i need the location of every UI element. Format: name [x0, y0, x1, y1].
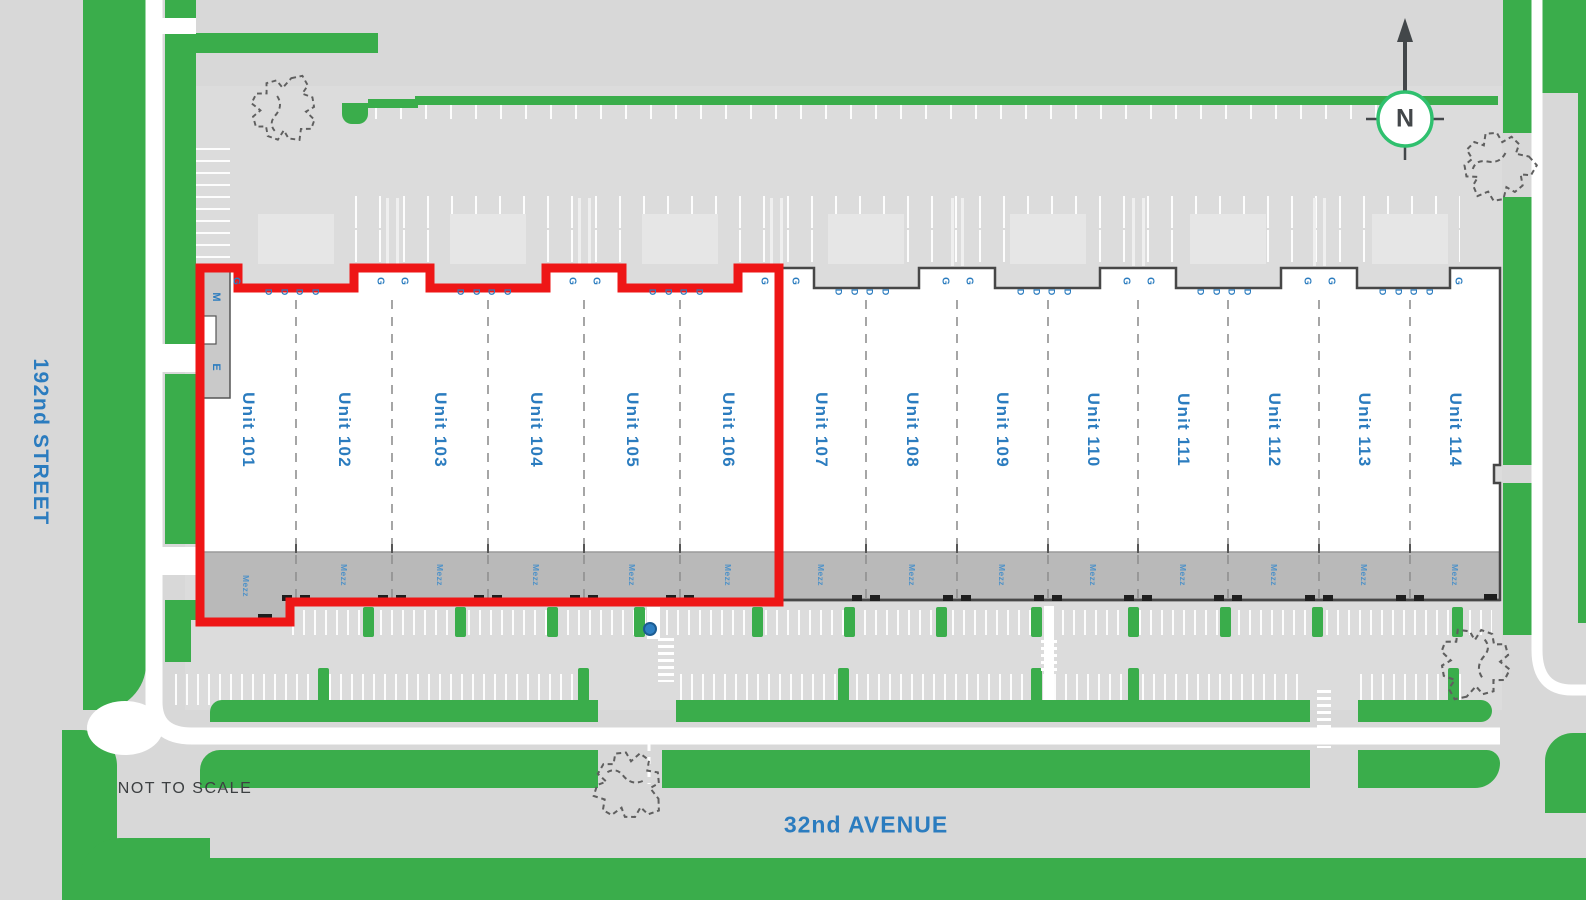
man-door-label: D: [1046, 289, 1056, 296]
man-door-labels: DDDD: [835, 287, 888, 297]
mezzanine-band: [200, 552, 1500, 622]
mech-room-label: M: [210, 292, 222, 301]
garage-door-label: G: [1453, 277, 1464, 285]
unit-label: Unit 104: [526, 392, 546, 468]
man-door-label: D: [455, 289, 465, 296]
man-door-label: D: [486, 289, 496, 296]
mezz-label: Mezz: [1450, 564, 1460, 586]
garage-door-label: G: [759, 277, 770, 285]
mezz-label: Mezz: [627, 564, 637, 586]
unit-label: Unit 106: [718, 392, 738, 468]
mezz-label: Mezz: [435, 564, 445, 586]
garage-door-label: G: [1302, 277, 1313, 285]
scale-note: NOT TO SCALE: [118, 780, 252, 798]
unit-label: Unit 113: [1354, 393, 1374, 468]
unit-label: Unit 105: [622, 392, 642, 468]
man-door-label: D: [1211, 289, 1221, 296]
mezz-label: Mezz: [1269, 564, 1279, 586]
man-door-label: D: [471, 289, 481, 296]
unit-label: Unit 107: [811, 392, 831, 468]
site-plan: Unit 101 Unit 102 Unit 103 Unit 104 Unit…: [0, 0, 1586, 900]
man-door-label: D: [1062, 289, 1072, 296]
man-door-label: D: [880, 289, 890, 296]
unit-label: Unit 111: [1173, 393, 1193, 467]
garage-door-label: G: [940, 277, 951, 285]
mezz-label: Mezz: [1178, 564, 1188, 586]
garage-door-label: G: [790, 277, 801, 285]
mezz-label: Mezz: [339, 564, 349, 586]
man-door-label: D: [1424, 289, 1434, 296]
man-door-label: D: [1195, 289, 1205, 296]
unit-label: Unit 103: [430, 392, 450, 468]
mezz-label: Mezz: [531, 564, 541, 586]
man-door-labels: DDDD: [1379, 287, 1432, 297]
man-door-label: D: [294, 289, 304, 296]
mezz-label: Mezz: [997, 564, 1007, 586]
north-arrow: [1366, 18, 1444, 160]
mezz-label: Mezz: [907, 564, 917, 586]
garage-door-label: G: [1145, 277, 1156, 285]
man-door-label: D: [663, 289, 673, 296]
garage-door-label: G: [375, 277, 386, 285]
unit-label: Unit 112: [1264, 393, 1284, 468]
man-door-label: D: [1242, 289, 1252, 296]
unit-label: Unit 109: [992, 392, 1012, 468]
unit-label: Unit 110: [1083, 393, 1103, 468]
man-door-labels: DDDD: [1017, 287, 1070, 297]
unit-label: Unit 108: [902, 392, 922, 468]
garage-door-label: G: [964, 277, 975, 285]
man-door-label: D: [833, 289, 843, 296]
north-label: N: [1396, 105, 1414, 134]
unit-label: Unit 114: [1445, 393, 1465, 468]
man-door-label: D: [310, 289, 320, 296]
mezz-label: Mezz: [816, 564, 826, 586]
garage-door-label: G: [591, 277, 602, 285]
mezz-label: Mezz: [1088, 564, 1098, 586]
man-door-label: D: [1015, 289, 1025, 296]
man-door-label: D: [1408, 289, 1418, 296]
garage-door-label: G: [231, 277, 242, 285]
street-label-south: 32nd AVENUE: [784, 812, 948, 839]
man-door-labels: DDDD: [649, 287, 702, 297]
man-door-label: D: [864, 289, 874, 296]
man-door-label: D: [1393, 289, 1403, 296]
elec-room-label: E: [210, 363, 222, 370]
man-door-label: D: [279, 289, 289, 296]
mezz-label: Mezz: [723, 564, 733, 586]
man-door-label: D: [678, 289, 688, 296]
man-door-label: D: [647, 289, 657, 296]
unit-label: Unit 101: [238, 392, 258, 468]
man-door-label: D: [849, 289, 859, 296]
garage-door-label: G: [567, 277, 578, 285]
mezz-label: Mezz: [1359, 564, 1369, 586]
man-door-label: D: [1031, 289, 1041, 296]
man-door-label: D: [502, 289, 512, 296]
garage-door-label: G: [1326, 277, 1337, 285]
man-door-labels: DDDD: [1197, 287, 1250, 297]
garage-door-label: G: [399, 277, 410, 285]
man-door-label: D: [263, 289, 273, 296]
blue-marker-dot: [644, 623, 656, 635]
man-door-labels: DDDD: [457, 287, 510, 297]
man-door-label: D: [1226, 289, 1236, 296]
crosswalk: [649, 638, 1324, 784]
garage-door-label: G: [1121, 277, 1132, 285]
man-door-label: D: [694, 289, 704, 296]
unit-label: Unit 102: [334, 392, 354, 468]
man-door-labels: DDDD: [265, 287, 318, 297]
mezz-label: Mezz: [241, 575, 251, 597]
street-label-west: 192nd STREET: [28, 358, 52, 525]
man-door-label: D: [1377, 289, 1387, 296]
